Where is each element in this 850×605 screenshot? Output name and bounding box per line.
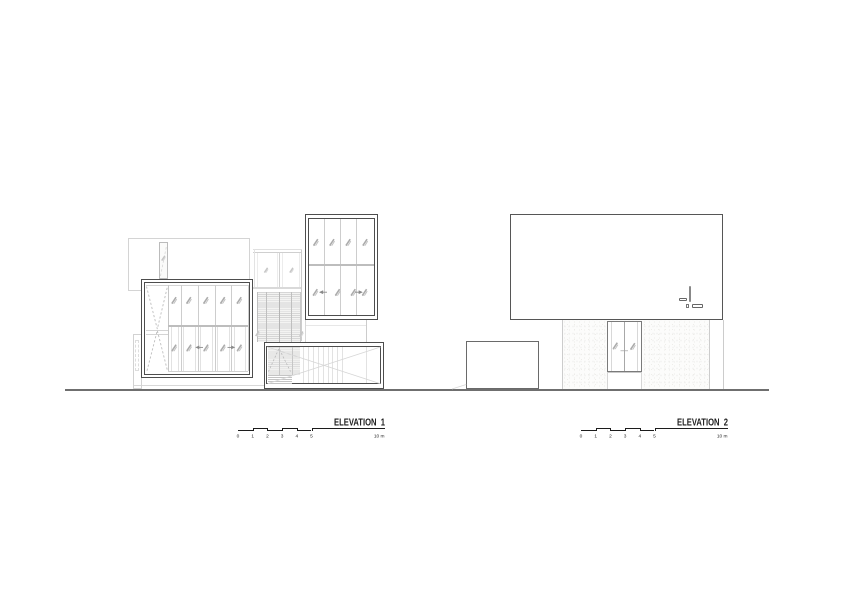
svg-text:ELEVATION 2: ELEVATION 2 (677, 417, 728, 428)
svg-text:3: 3 (281, 433, 284, 439)
svg-text:2: 2 (609, 433, 612, 439)
svg-text:5: 5 (310, 433, 313, 439)
svg-text:ELEVATION 1: ELEVATION 1 (334, 417, 385, 428)
svg-text:1: 1 (594, 433, 597, 439)
svg-text:1: 1 (251, 433, 254, 439)
svg-text:5: 5 (653, 433, 656, 439)
svg-text:2: 2 (266, 433, 269, 439)
svg-text:0: 0 (237, 433, 240, 439)
svg-text:10 m: 10 m (374, 433, 385, 439)
svg-text:0: 0 (580, 433, 583, 439)
svg-text:3: 3 (624, 433, 627, 439)
svg-text:10 m: 10 m (717, 433, 728, 439)
svg-text:4: 4 (638, 433, 641, 439)
svg-text:4: 4 (295, 433, 298, 439)
